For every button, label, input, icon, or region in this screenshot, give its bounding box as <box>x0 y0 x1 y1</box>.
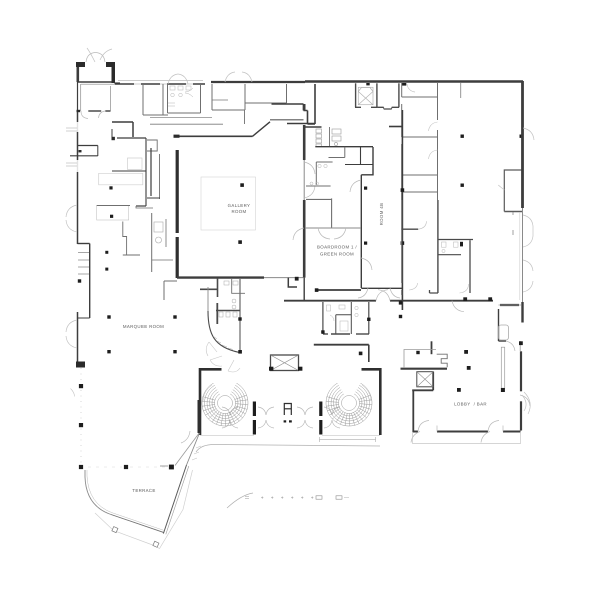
svg-text:LOBBY / BAR: LOBBY / BAR <box>454 402 487 407</box>
svg-text:ROOM: ROOM <box>231 209 246 214</box>
svg-text:MARQUEE ROOM: MARQUEE ROOM <box>123 324 164 329</box>
svg-text:ROOM 4B: ROOM 4B <box>379 203 384 226</box>
svg-text:GREEN ROOM: GREEN ROOM <box>320 252 354 257</box>
svg-text:TERRACE: TERRACE <box>132 488 155 493</box>
svg-text:GALLERY: GALLERY <box>228 203 251 208</box>
svg-text:BOARDROOM 1 /: BOARDROOM 1 / <box>317 245 357 250</box>
